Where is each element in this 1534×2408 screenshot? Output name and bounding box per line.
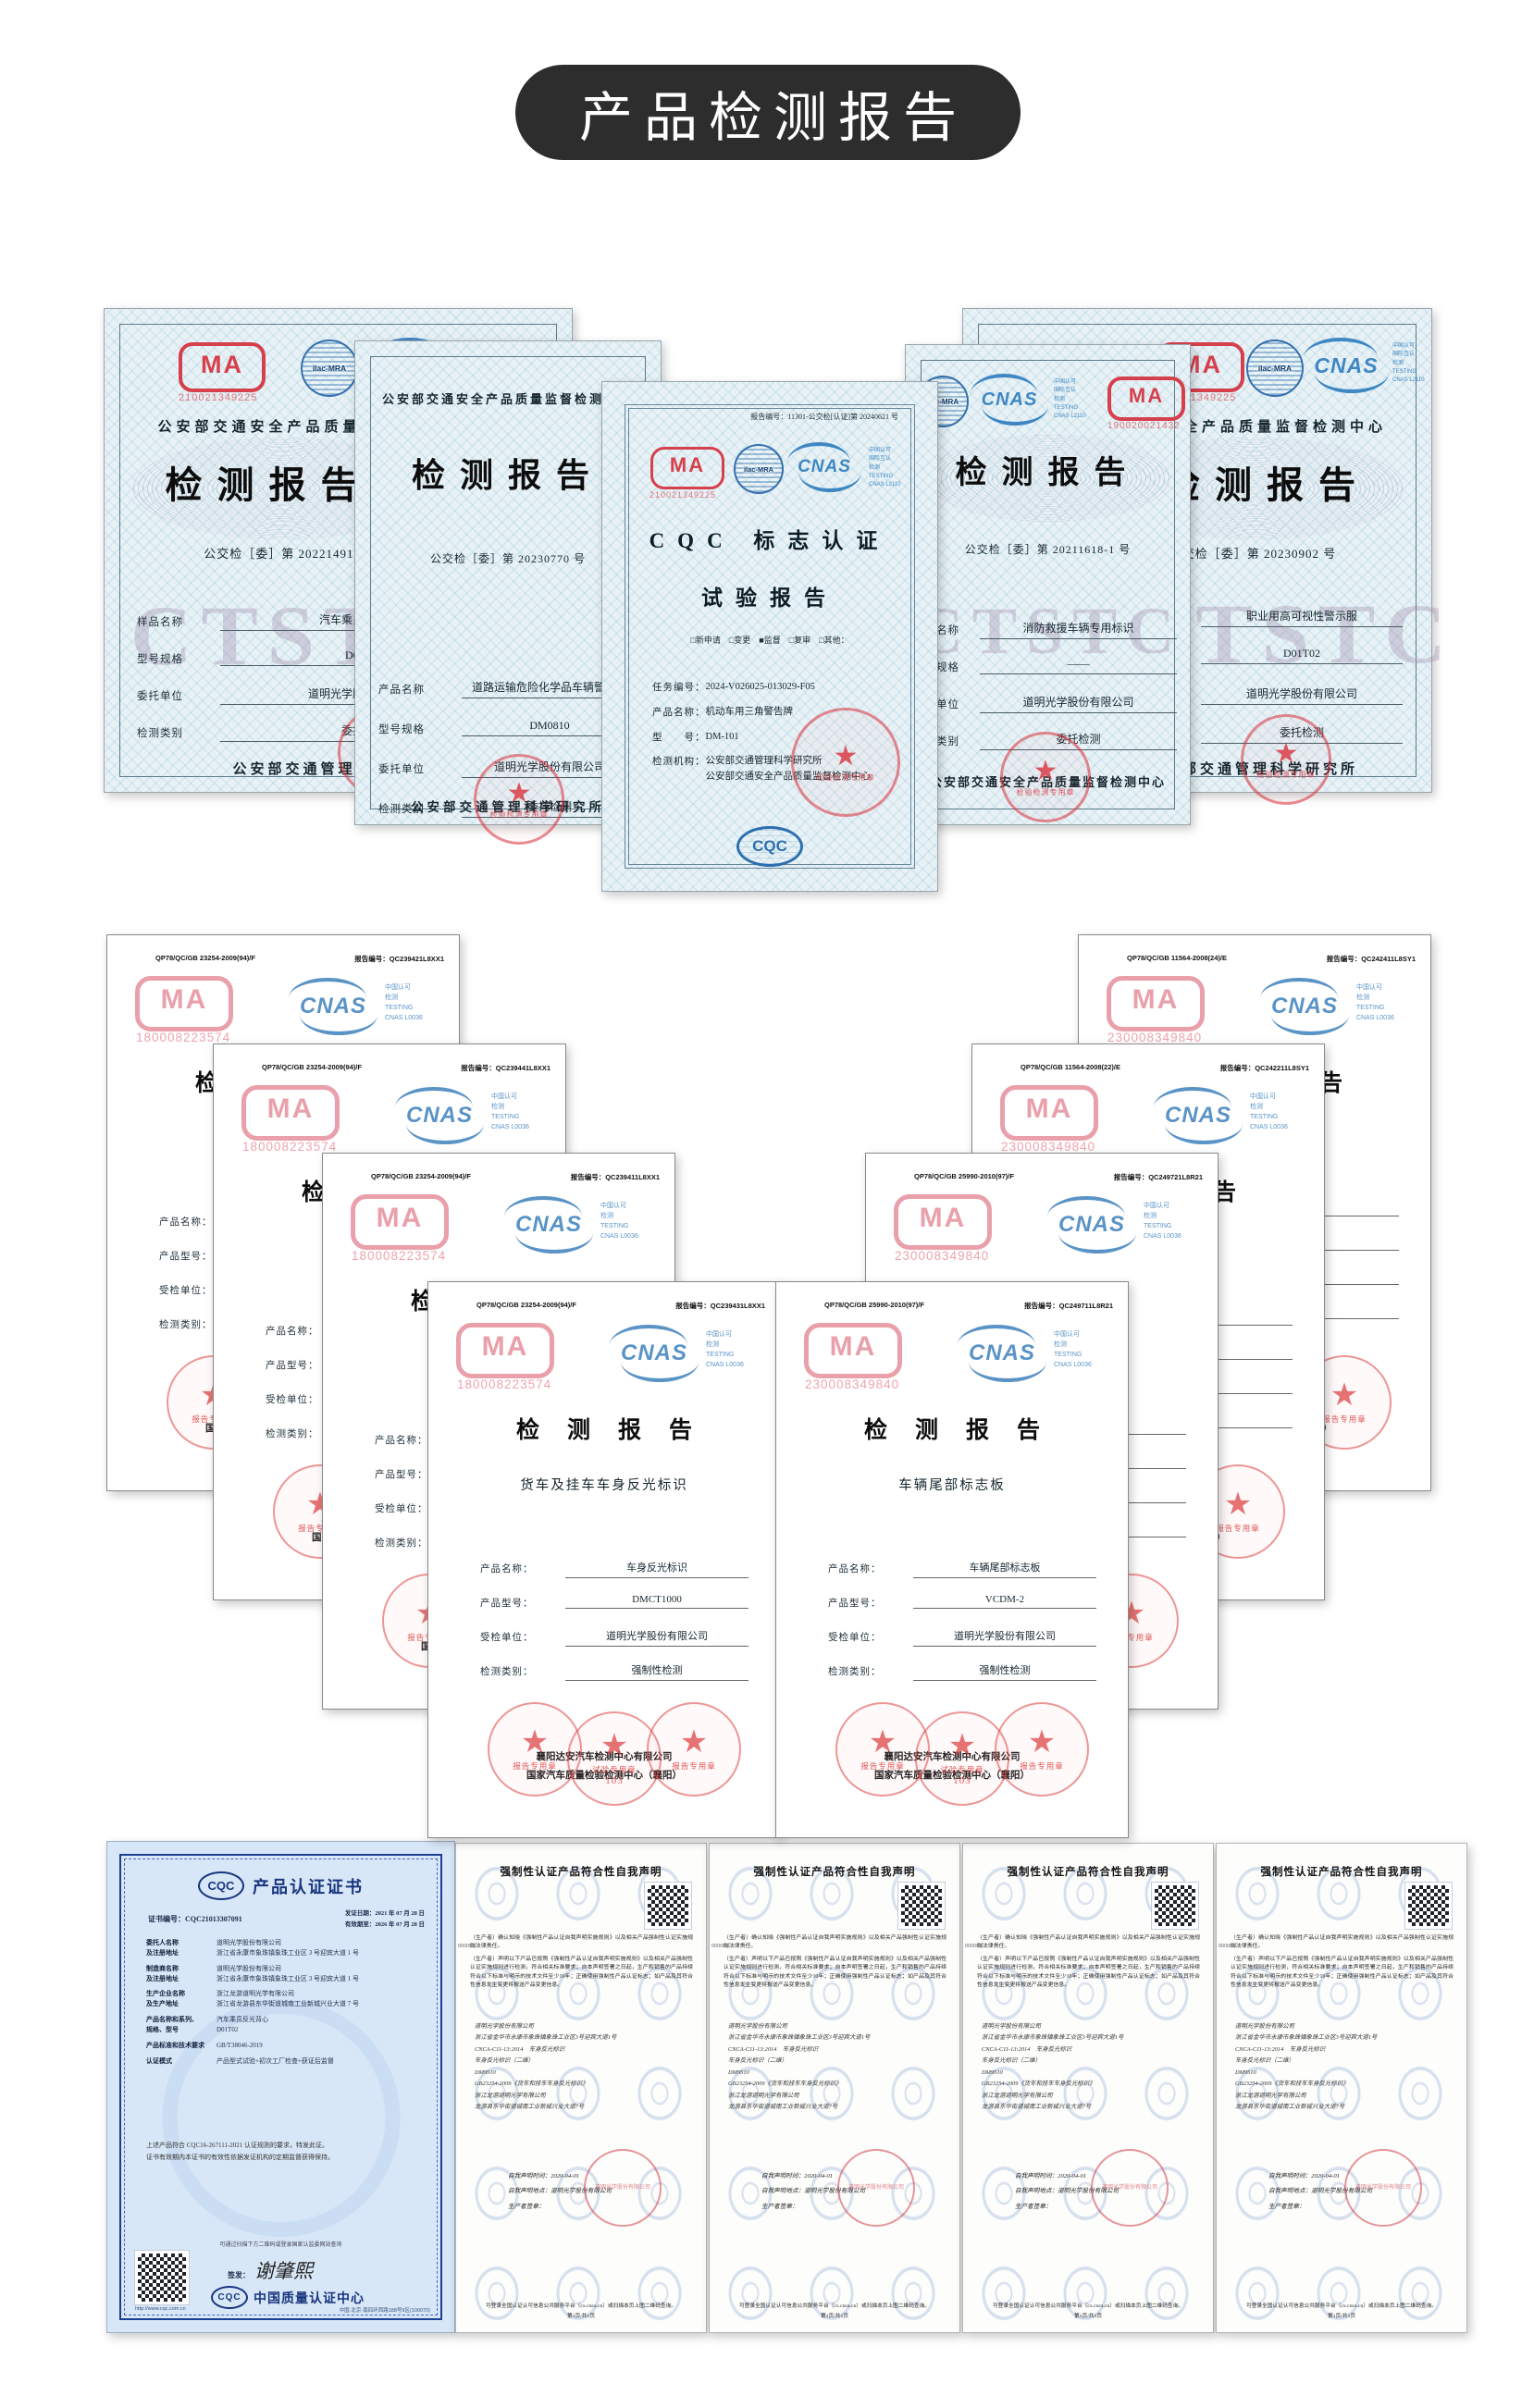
report-number: 报告编号：11301-公交检[认证]第 20240621 号 — [750, 412, 898, 422]
declaration-title: 强制性认证产品符合性自我声明 — [1217, 1864, 1466, 1879]
cqc-logo-icon: CQC — [198, 1871, 244, 1900]
certificate-fields: 委托人名称 及注册地址道明光学股份有限公司 浙江省永康市象珠镇象珠工业区 3 号… — [146, 1938, 427, 2071]
cma-number: 180008223574 — [457, 1377, 551, 1391]
cnas-accreditation-text: 中国认可 国际互认 检测 TESTING CNAS L2110 — [1054, 378, 1086, 421]
star-icon: ★ — [869, 1727, 897, 1759]
company-seal: 道明光学股份有限公司 — [837, 2149, 915, 2227]
cnas-accreditation-text: 中国认可 检测 TESTING CNAS L0036 — [385, 983, 423, 1023]
star-icon: ★ — [1330, 1380, 1358, 1412]
star-icon: ★ — [834, 743, 859, 771]
form-code: QP78/QC/GB 11564-2008(22)/E — [1021, 1063, 1120, 1071]
company-seal: 道明光学股份有限公司 — [1344, 2149, 1422, 2227]
cnas-accreditation-text: 中国认可 国际互认 检测 TESTING CNAS L2110 — [1392, 342, 1425, 385]
field-list: 产品名称：车辆尾部标志板 产品型号：VCDM-2 受检单位：道明光学股份有限公司… — [828, 1552, 1096, 1689]
document-number: 公交检［委］第 20211618-1 号 — [906, 541, 1190, 557]
declaration-paragraphs: （生产者）确认知晓《强制性产品认证自我声明实施规则》以及相关产品强制性认证实施规… — [977, 1934, 1200, 1994]
certificate-title: 产品认证证书 — [253, 1874, 364, 1898]
certificate-number: 证书编号：CQC21013307091 — [148, 1914, 242, 1924]
star-icon: ★ — [680, 1727, 708, 1759]
cqc-test-report: 报告编号：11301-公交检[认证]第 20240621 号 MA2100213… — [601, 381, 938, 892]
ilac-mra-logo-icon: ilac-MRA — [734, 444, 784, 494]
report-number: 报告编号：QC242211L8SY1 — [1220, 1063, 1309, 1073]
ilac-mra-logo-icon: ilac-MRA — [301, 340, 358, 397]
cnas-accreditation-text: 中国认可 检测 TESTING CNAS L0036 — [706, 1330, 744, 1370]
star-icon: ★ — [600, 1731, 628, 1762]
cma-number: 190020021432 — [1107, 421, 1181, 431]
cnas-logo-icon: CNAS — [291, 985, 376, 1028]
checkbox-row: □新申请 □变更 ■监督 □复审 □其他： — [602, 634, 937, 646]
cnas-accreditation-text: 中国认可 国际互认 检测 TESTING CNAS L2110 — [869, 447, 901, 489]
white-report-dmct1000: QP78/QC/GB 23254-2009(94)/F 报告编号：QC23943… — [427, 1281, 781, 1838]
declaration-footer: 可登录全国认证认可信息公共服务平台（cx.cnca.cn）或扫描本页上图二维码查… — [971, 2302, 1206, 2321]
declaration-title: 强制性认证产品符合性自我声明 — [963, 1864, 1213, 1879]
report-title-line1: CQC 标志认证 — [602, 523, 937, 554]
self-declaration-4: 强制性认证产品符合性自我声明 000006 （生产者）确认知晓《强制性产品认证自… — [1216, 1843, 1467, 2333]
official-seal: ★检验检测专用章 — [1000, 732, 1091, 822]
report-number: 报告编号：QC239431L8XX1 — [675, 1301, 765, 1311]
cnas-logo-icon: CNAS — [1156, 1094, 1241, 1137]
form-code: QP78/QC/GB 25990-2010(97)/F — [914, 1172, 1014, 1180]
report-subtitle: 货车及挂车车身反光标识 — [428, 1475, 780, 1494]
declaration-footer: 可登录全国认证认可信息公共服务平台（cx.cnca.cn）或扫描本页上图二维码查… — [1224, 2302, 1459, 2321]
issuer-url: http://www.cqc.com.cn — [135, 2306, 186, 2314]
cma-logo-icon: MA180008223574 — [351, 1194, 449, 1250]
report-number: 报告编号：QC249721L8R21 — [1114, 1172, 1203, 1182]
official-seal: ★检验检测专用章 — [1241, 714, 1331, 805]
blue-report-4: ilac-MRA CNAS 中国认可 国际互认 检测 TESTING CNAS … — [905, 344, 1191, 825]
cnas-accreditation-text: 中国认可 检测 TESTING CNAS L0036 — [600, 1202, 638, 1241]
cma-number: 230008349840 — [1107, 1031, 1202, 1044]
cma-logo-icon: MA230008349840 — [804, 1323, 902, 1378]
report-title: 检测报告 — [428, 1412, 780, 1445]
qr-code — [645, 1883, 691, 1929]
report-number: 报告编号：QC239441L8XX1 — [461, 1063, 551, 1073]
cnas-logo-icon: CNAS — [972, 381, 1046, 418]
star-icon: ★ — [948, 1731, 976, 1762]
star-icon: ★ — [1224, 1489, 1252, 1521]
star-icon: ★ — [507, 780, 532, 808]
cnas-logo-icon: CNAS — [1305, 345, 1387, 386]
cnas-accreditation-text: 中国认可 检测 TESTING CNAS L0036 — [1250, 1093, 1288, 1132]
cnas-logo-icon: CNAS — [506, 1204, 591, 1246]
qr-code — [1152, 1883, 1198, 1929]
star-icon: ★ — [521, 1727, 549, 1759]
declaration-footer: 可登录全国认证认可信息公共服务平台（cx.cnca.cn）或扫描本页上图二维码查… — [717, 2302, 952, 2321]
certificate-statement: 上述产品符合 CQC16-267111-2021 认证规则的要求，特发此证。 证… — [146, 2140, 427, 2165]
star-icon: ★ — [1274, 740, 1299, 768]
report-title: 检测报告 — [776, 1412, 1128, 1445]
field-list: 产品名称：车身反光标识 产品型号：DMCT1000 受检单位：道明光学股份有限公… — [480, 1552, 748, 1689]
cma-number: 210021349225 — [649, 490, 716, 500]
report-number: 报告编号：QC239421L8XX1 — [354, 954, 444, 964]
signature: 谢肇熙 — [254, 2256, 313, 2284]
cma-logo-icon: MA180008223574 — [135, 976, 233, 1031]
official-seal: ★检验检测专用章 — [791, 708, 900, 817]
official-seal: ★检验检测专用章 — [474, 754, 564, 845]
report-number: 报告编号：QC249711L8R21 — [1024, 1301, 1113, 1311]
cma-logo-icon: MA190020021432 — [1107, 377, 1185, 421]
cnas-logo-icon: CNAS — [1049, 1204, 1134, 1246]
report-number: 报告编号：QC239411L8XX1 — [571, 1172, 660, 1182]
report-number: 报告编号：QC242411L8SY1 — [1327, 954, 1416, 964]
self-declaration-3: 强制性认证产品符合性自我声明 000006 （生产者）确认知晓《强制性产品认证自… — [962, 1843, 1214, 2333]
product-info: 道明光学股份有限公司 浙江省金华市永康市象珠镇象珠工业区3号迎宾大道1号 CNC… — [982, 2021, 1202, 2114]
declaration-paragraphs: （生产者）确认知晓《强制性产品认证自我声明实施规则》以及相关产品强制性认证实施规… — [724, 1934, 946, 1994]
cma-number: 230008349840 — [805, 1377, 899, 1391]
cma-logo-icon: MA230008349840 — [894, 1194, 992, 1250]
certificate-dates: 发证日期：2021 年 07 月 28 日 有效期至：2026 年 07 月 2… — [345, 1908, 425, 1930]
cma-logo-icon: MA210021349225 — [179, 342, 266, 392]
report-title: 检测报告 — [906, 447, 1190, 492]
cnas-accreditation-text: 中国认可 检测 TESTING CNAS L0036 — [1144, 1202, 1181, 1241]
cqc-logo-icon: CQC — [736, 826, 803, 867]
declaration-paragraphs: （生产者）确认知晓《强制性产品认证自我声明实施规则》以及相关产品强制性认证实施规… — [1231, 1934, 1454, 1994]
product-info: 道明光学股份有限公司 浙江省金华市永康市象珠镇象珠工业区3号迎宾大道1号 CNC… — [1235, 2021, 1455, 2114]
declaration-paragraphs: （生产者）确认知晓《强制性产品认证自我声明实施规则》以及相关产品强制性认证实施规… — [470, 1934, 693, 1994]
report-title-line2: 试验报告 — [602, 580, 937, 611]
cnas-accreditation-text: 中国认可 检测 TESTING CNAS L0036 — [1356, 983, 1394, 1023]
cnas-logo-icon: CNAS — [959, 1332, 1045, 1375]
star-icon: ★ — [1028, 1727, 1056, 1759]
report-seal: ★报告专用章 — [995, 1702, 1089, 1797]
declaration-title: 强制性认证产品符合性自我声明 — [456, 1864, 706, 1879]
report-subtitle: 车辆尾部标志板 — [776, 1475, 1128, 1494]
cnas-accreditation-text: 中国认可 检测 TESTING CNAS L0036 — [491, 1093, 529, 1132]
product-info: 道明光学股份有限公司 浙江省金华市永康市象珠镇象珠工业区3号迎宾大道1号 CNC… — [728, 2021, 948, 2114]
cma-number: 180008223574 — [352, 1249, 446, 1263]
cnas-accreditation-text: 中国认可 检测 TESTING CNAS L0036 — [1054, 1330, 1092, 1370]
cnas-logo-icon: CNAS — [397, 1094, 482, 1137]
white-report-vcdm2: QP78/QC/GB 25990-2010(97)/F 报告编号：QC24971… — [775, 1281, 1129, 1838]
self-declaration-1: 强制性认证产品符合性自我声明 000006 （生产者）确认知晓《强制性产品认证自… — [455, 1843, 707, 2333]
signature-row: 签发： 谢肇熙 — [228, 2256, 313, 2284]
cnas-logo-icon: CNAS — [789, 450, 860, 485]
cqc-product-certificate: CQC 产品认证证书 证书编号：CQC21013307091 发证日期：2021… — [106, 1841, 455, 2333]
cma-logo-icon: MA230008349840 — [1000, 1085, 1098, 1141]
qr-note: 可通过扫描下方二维码或登录国家认监委网站查询 — [107, 2240, 454, 2248]
form-code: QP78/QC/GB 23254-2009(94)/F — [262, 1063, 362, 1071]
cma-logo-icon: MA180008223574 — [456, 1323, 554, 1378]
ilac-mra-logo-icon: ilac-MRA — [1246, 340, 1304, 397]
cma-number: 210021349225 — [179, 392, 257, 403]
form-code: QP78/QC/GB 11564-2008(24)/E — [1127, 954, 1227, 962]
company-seal: 道明光学股份有限公司 — [584, 2149, 662, 2227]
logo-row: MA210021349225 ilac-MRA CNAS 中国认可 国际互认 检… — [602, 447, 937, 513]
form-code: QP78/QC/GB 25990-2010(97)/F — [824, 1301, 924, 1309]
cma-number: 180008223574 — [136, 1031, 230, 1044]
form-code: QP78/QC/GB 23254-2009(94)/F — [371, 1172, 471, 1180]
cma-number: 180008223574 — [242, 1140, 337, 1154]
company-seal: 道明光学股份有限公司 — [1091, 2149, 1169, 2227]
form-code: QP78/QC/GB 23254-2009(94)/F — [476, 1301, 576, 1309]
form-code: QP78/QC/GB 23254-2009(94)/F — [155, 954, 255, 962]
declaration-footer: 可登录全国认证认可信息公共服务平台（cx.cnca.cn）或扫描本页上图二维码查… — [464, 2302, 699, 2321]
qr-code — [135, 2251, 189, 2304]
certificate-footer: http://www.cqc.com.cn 中国·北京·南四环西路188号9区(… — [135, 2306, 430, 2314]
report-seal: ★报告专用章 — [647, 1702, 741, 1797]
declaration-title: 强制性认证产品符合性自我声明 — [710, 1864, 959, 1879]
cma-number: 230008349840 — [1001, 1140, 1095, 1154]
cma-logo-icon: MA210021349225 — [650, 447, 724, 489]
cnas-logo-icon: CNAS — [1262, 985, 1347, 1028]
cma-logo-icon: MA180008223574 — [241, 1085, 340, 1141]
product-info: 道明光学股份有限公司 浙江省金华市永康市象珠镇象珠工业区3号迎宾大道1号 CNC… — [475, 2021, 695, 2114]
cnas-logo-icon: CNAS — [612, 1332, 697, 1375]
certificate-header: CQC 产品认证证书 — [107, 1871, 454, 1900]
cma-logo-icon: MA230008349840 — [1107, 976, 1205, 1031]
cma-number: 230008349840 — [895, 1249, 989, 1263]
issuer-address: 中国·北京·南四环西路188号9区(100070) — [340, 2306, 430, 2314]
page: 产品检测报告 MA210021349225 ilac-MRA CNAS 中国认可… — [0, 0, 1534, 2408]
issuer-name: 中国质量认证中心 — [254, 2289, 365, 2307]
qr-code — [1405, 1883, 1452, 1929]
star-icon: ★ — [1033, 758, 1058, 785]
qr-code — [898, 1883, 945, 1929]
page-title: 产品检测报告 — [515, 65, 1021, 160]
self-declaration-2: 强制性认证产品符合性自我声明 000006 （生产者）确认知晓《强制性产品认证自… — [709, 1843, 960, 2333]
